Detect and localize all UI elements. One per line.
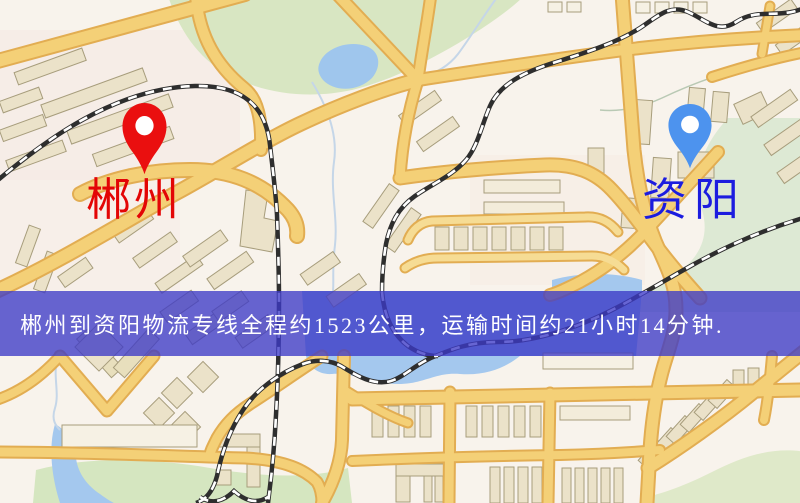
destination-label: 资阳: [642, 178, 746, 223]
route-info-banner: 郴州到资阳物流专线全程约1523公里，运输时间约21小时14分钟.: [0, 291, 800, 356]
destination-pin-icon: [667, 104, 713, 169]
route-info-text: 郴州到资阳物流专线全程约1523公里，运输时间约21小时14分钟.: [0, 308, 724, 340]
map-base-layer: [0, 0, 800, 503]
map-canvas: 郴州 资阳 郴州到资阳物流专线全程约1523公里，运输时间约21小时14分钟.: [0, 0, 800, 503]
destination-pin-shape: [667, 104, 713, 169]
origin-pin-shape: [121, 103, 168, 175]
origin-pin-icon: [121, 103, 168, 175]
origin-label: 郴州: [86, 178, 182, 223]
